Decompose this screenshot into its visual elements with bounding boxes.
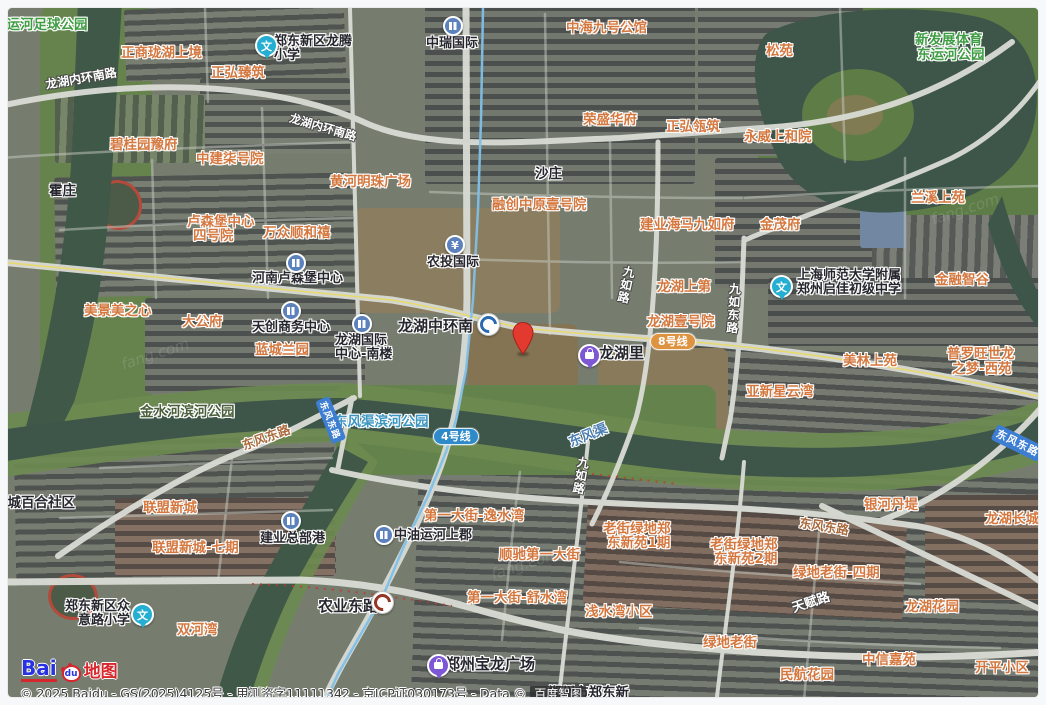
residential-label[interactable]: 正商珑湖上境 <box>121 41 202 61</box>
road-label: 龙湖内环南路 <box>44 63 118 92</box>
residential-label[interactable]: 蓝城兰园 <box>255 338 309 358</box>
residential-label[interactable]: 荣盛华府 <box>583 108 637 128</box>
office-poi-icon[interactable] <box>443 16 463 36</box>
residential-label[interactable]: 浅水湾小区 <box>585 600 653 620</box>
residential-label[interactable]: 融创中原壹号院 <box>492 193 587 213</box>
residential-label[interactable]: 龙湖上第 <box>657 275 711 295</box>
place-label[interactable]: 农业东路 <box>318 595 378 616</box>
water-label: 东风渠 <box>565 417 610 451</box>
residential-label[interactable]: 中海九号公馆 <box>566 16 647 36</box>
residential-label[interactable]: 银河丹堤 <box>864 493 918 513</box>
residential-label[interactable]: 联盟新城 <box>143 496 197 516</box>
residential-label[interactable]: 之梦-西苑 <box>952 357 1012 377</box>
bank-poi-icon[interactable]: ¥ <box>445 235 465 255</box>
residential-label[interactable]: 建业海马九如府 <box>640 213 735 233</box>
residential-label[interactable]: 第一大街-逸水湾 <box>424 504 524 524</box>
residential-label[interactable]: 东新苑2期 <box>714 547 777 567</box>
office-poi-icon[interactable] <box>286 253 306 273</box>
park-label[interactable]: 东风渠滨河公园 <box>334 410 429 430</box>
poi-label[interactable]: 上海师范大学附属郑州启佳初级中学 <box>797 269 901 297</box>
map-viewport[interactable]: 西运河足球公园新发展体育东运河公园东风渠滨河公园金水河滨河公园东风渠霍庄沙庄绿城… <box>8 8 1038 697</box>
office-poi-icon[interactable] <box>281 511 301 531</box>
office-poi-icon[interactable] <box>281 301 301 321</box>
place-label[interactable]: 龙湖中环南 <box>398 315 473 336</box>
baidu-maps-logo[interactable]: Bai du 地图 <box>21 654 118 682</box>
poi-label[interactable]: 郑东新区众意路小学 <box>40 600 130 628</box>
place-label[interactable]: 沙庄 <box>535 162 562 182</box>
residential-label[interactable]: 民航花园 <box>780 663 834 683</box>
road-label: 东风东路 <box>798 512 850 539</box>
residential-label[interactable]: 碧桂园豫府 <box>110 133 178 153</box>
map-attribution: © 2025 Baidu - GS(2025)4125号 - 甲测资字11111… <box>20 683 586 697</box>
residential-label[interactable]: 中建柒号院 <box>196 147 264 167</box>
residential-label[interactable]: 美林上苑 <box>843 349 897 369</box>
residential-label[interactable]: 正弘瓴筑 <box>666 115 720 135</box>
residential-label[interactable]: 龙湖壹号院 <box>647 310 715 330</box>
poi-label[interactable]: 天创商务中心 <box>252 321 330 335</box>
place-label[interactable]: 绿城百合社区 <box>8 491 75 511</box>
logo-bai-text: Bai <box>21 657 57 682</box>
residential-label[interactable]: 万众顺和禧 <box>263 221 331 241</box>
residential-label[interactable]: 开平小区 <box>975 656 1029 676</box>
residential-label[interactable]: 第一大街-舒水湾 <box>467 586 567 606</box>
residential-label[interactable]: 四号院 <box>193 224 234 244</box>
park-label[interactable]: 西运河足球公园 <box>8 13 88 33</box>
poi-label[interactable]: 龙湖里 <box>599 346 644 360</box>
residential-label[interactable]: 龙湖长城 <box>985 507 1038 527</box>
road-label: 龙湖内环南路 <box>288 110 359 144</box>
school-poi-icon[interactable]: 文 <box>131 603 154 626</box>
logo-map-text: 地图 <box>84 662 118 682</box>
metro-line-badge: 4号线 <box>433 428 479 445</box>
residential-label[interactable]: 金融智谷 <box>935 268 989 288</box>
road-badge: 东风东路 <box>991 424 1038 462</box>
residential-label[interactable]: 双河湾 <box>177 618 218 638</box>
poi-label[interactable]: 郑东新区龙腾小学 <box>274 35 352 63</box>
poi-label[interactable]: 建业总部港 <box>260 532 325 546</box>
residential-label[interactable]: 顺驰第一大街 <box>499 543 580 563</box>
school-poi-icon[interactable]: 文 <box>770 275 793 298</box>
residential-label[interactable]: 正弘臻筑 <box>211 61 265 81</box>
residential-label[interactable]: 松苑 <box>766 39 793 59</box>
residential-label[interactable]: 美景美之心 <box>84 299 152 319</box>
road-label: 九如路 <box>569 455 593 496</box>
poi-label[interactable]: 中瑞国际 <box>426 37 478 51</box>
office-poi-icon[interactable] <box>352 314 372 334</box>
road-label: 九如路 <box>614 264 639 306</box>
mall-poi-icon[interactable] <box>427 654 450 677</box>
residential-label[interactable]: 联盟新城-七期 <box>152 536 239 556</box>
metro-line-badge: 8号线 <box>650 333 696 350</box>
residential-label[interactable]: 黄河明珠广场 <box>330 170 411 190</box>
mall-poi-icon[interactable] <box>578 344 601 367</box>
copyright-text: © 2025 Baidu - GS(2025)4125号 - 甲测资字11111… <box>20 686 530 697</box>
residential-label[interactable]: 金茂府 <box>760 213 801 233</box>
baidu-paw-icon: du <box>58 657 81 682</box>
road-label: 九如东路 <box>723 282 744 335</box>
poi-label[interactable]: 河南卢森堡中心 <box>252 272 343 286</box>
place-label[interactable]: 霍庄 <box>49 179 76 199</box>
residential-label[interactable]: 永威上和院 <box>744 125 812 145</box>
park-label[interactable]: 东运河公园 <box>917 43 985 63</box>
brand-badge: 百度智图 <box>530 686 586 697</box>
office-poi-icon[interactable] <box>374 525 394 545</box>
residential-label[interactable]: 大公府 <box>182 310 223 330</box>
poi-label[interactable]: 郑州宝龙广场 <box>445 657 535 671</box>
road-label: 天赋路 <box>789 586 832 616</box>
park-label[interactable]: 金水河滨河公园 <box>140 400 235 420</box>
residential-label[interactable]: 东新苑1期 <box>607 531 670 551</box>
poi-label[interactable]: 龙湖国际中心-南楼 <box>335 334 392 362</box>
residential-label[interactable]: 中信嘉苑 <box>862 648 916 668</box>
metro-station-icon[interactable] <box>371 591 394 614</box>
residential-label[interactable]: 亚新星云湾 <box>746 380 814 400</box>
residential-label[interactable]: 绿地老街 <box>703 631 757 651</box>
watermark: fang.com <box>119 335 191 374</box>
road-label: 东风东路 <box>239 419 292 454</box>
metro-station-icon[interactable] <box>477 313 500 336</box>
school-poi-icon[interactable]: 文 <box>255 34 278 57</box>
residential-label[interactable]: 龙湖花园 <box>905 595 959 615</box>
residential-label[interactable]: 绿地老街-四期 <box>793 561 880 581</box>
residential-label[interactable]: 兰溪上苑 <box>911 186 965 206</box>
poi-label[interactable]: 中油运河上郡 <box>394 529 472 543</box>
poi-label[interactable]: 农投国际 <box>427 256 479 270</box>
